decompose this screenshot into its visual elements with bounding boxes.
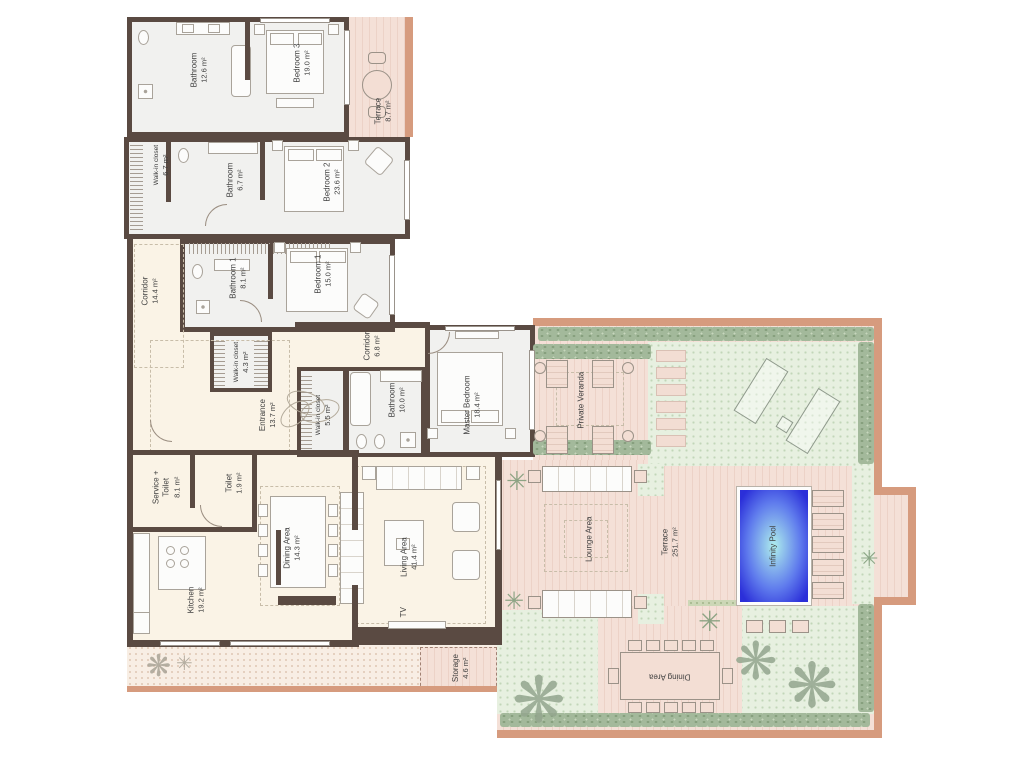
garden-right-strip <box>852 466 874 604</box>
wardrobe <box>254 338 268 388</box>
dining-chair <box>700 640 714 651</box>
stepping-stone <box>656 384 686 396</box>
sink <box>182 24 194 33</box>
dining-chair <box>628 640 642 651</box>
dining-chair <box>258 504 268 517</box>
dining-chair <box>258 564 268 577</box>
pool-lounger <box>812 582 844 599</box>
room-label-wic-master: Walk-in closet5.5 m² <box>312 385 336 445</box>
wall <box>260 142 265 200</box>
stepping-stone <box>656 418 686 430</box>
balcony-edge <box>127 686 497 692</box>
dining-chair <box>700 702 714 713</box>
floor-plan: ❋ ✳ <box>0 0 1024 768</box>
wall <box>190 450 195 508</box>
bidet <box>374 434 385 449</box>
bathtub <box>350 372 371 426</box>
tree-icon: ❋ <box>512 668 566 732</box>
nightstand <box>350 242 361 253</box>
wall-tv <box>352 627 502 645</box>
plant-icon: ✳ <box>176 654 193 674</box>
wall <box>127 234 133 646</box>
wall <box>245 22 250 80</box>
dining-chair <box>722 668 733 684</box>
nightstand <box>348 140 359 151</box>
pool-chair <box>792 620 809 633</box>
dining-chair <box>682 702 696 713</box>
wall <box>252 450 257 530</box>
hedge <box>533 344 651 359</box>
wardrobe <box>130 142 143 230</box>
room-label-corridor-master: Corridor6.8 m² <box>358 328 386 364</box>
outdoor-sofa <box>542 466 632 492</box>
fridge <box>133 612 150 634</box>
nightstand <box>274 242 285 253</box>
nightstand <box>328 24 339 35</box>
window <box>529 350 535 430</box>
wall <box>127 450 359 455</box>
side-table <box>622 362 634 374</box>
dining-chair <box>328 564 338 577</box>
outdoor-bump <box>874 487 916 605</box>
veranda-lounger <box>546 426 568 454</box>
nightstand <box>254 24 265 35</box>
bench <box>276 98 314 108</box>
terrace-top-edge <box>405 17 413 137</box>
room-label-kitchen: Kitchen19.2 m² <box>182 570 210 630</box>
dining-chair <box>258 544 268 557</box>
nightstand <box>505 428 516 439</box>
veranda-lounger <box>592 426 614 454</box>
wall <box>352 585 358 630</box>
side-table <box>528 470 541 483</box>
room-label-pool: Infinity Pool <box>760 514 788 578</box>
stepping-stone <box>656 435 686 447</box>
sink <box>208 24 220 33</box>
terrace-chair <box>368 52 386 64</box>
dining-chair <box>328 544 338 557</box>
armchair <box>452 502 480 532</box>
stepping-stone <box>656 401 686 413</box>
dining-chair <box>628 702 642 713</box>
wall <box>127 527 257 532</box>
tree-icon: ❋ <box>734 636 778 688</box>
room-label-tv: TV <box>395 600 413 624</box>
hedge <box>538 327 874 341</box>
dining-chair <box>664 640 678 651</box>
nightstand <box>427 428 438 439</box>
hedge <box>858 342 874 464</box>
room-label-wic-mid: Walk-in closet4.3 m² <box>230 334 254 390</box>
room-label-bedroom3: Bedroom 319.0 m² <box>290 35 316 91</box>
shower <box>196 300 210 314</box>
pool-lounger <box>812 513 844 530</box>
side-table <box>622 430 634 442</box>
shower <box>138 84 153 99</box>
room-label-dining: Dining Area14.3 m² <box>280 518 306 578</box>
outdoor-sofa <box>542 590 632 618</box>
dining-chair <box>646 702 660 713</box>
window <box>344 30 350 105</box>
nightstand <box>272 140 283 151</box>
palm-icon: ✳ <box>698 608 721 636</box>
side-table <box>634 470 647 483</box>
room-label-lounge: Lounge Area <box>576 508 604 570</box>
room-label-corridor-main: Corridor14.4 m² <box>136 262 164 320</box>
plant-icon: ❋ <box>146 652 171 682</box>
pool-chair <box>746 620 763 633</box>
dining-chair <box>258 524 268 537</box>
dining-chair <box>682 640 696 651</box>
window <box>445 326 515 331</box>
room-label-storage: Storage4.6 m² <box>448 646 474 690</box>
toilet <box>138 30 149 45</box>
side-table <box>534 430 546 442</box>
room-label-outdoor-dining: Dining Area <box>630 666 710 686</box>
side-table <box>362 466 376 480</box>
room-label-bedroom1: Bedroom 115.0 m² <box>310 243 338 305</box>
pool-chair <box>769 620 786 633</box>
room-label-bathroom3: Bathroom12.6 m² <box>186 40 212 100</box>
hob-burner <box>180 559 189 568</box>
room-label-service-toilet: Service + Toilet8.1 m² <box>150 458 184 516</box>
room-label-toilet: Toilet1.9 m² <box>222 458 248 508</box>
side-table <box>534 362 546 374</box>
room-label-private-veranda: Private Veranda <box>568 368 594 432</box>
pool-lounger <box>812 559 844 576</box>
dining-chair <box>664 702 678 713</box>
room-label-terrace-top: Terrace8.7 m² <box>370 82 396 140</box>
veranda-lounger <box>592 360 614 388</box>
tv-console <box>455 331 499 339</box>
dining-chair <box>646 640 660 651</box>
hob-burner <box>180 546 189 555</box>
room-label-wic-top: Walk-in closet6.7 m² <box>150 135 174 195</box>
pool-lounger <box>812 490 844 507</box>
room-label-bathroom1: Bathroom 18.1 m² <box>226 248 252 308</box>
stepping-stone <box>656 350 686 362</box>
toilet <box>356 434 367 449</box>
sideboard <box>278 596 336 605</box>
pool-lounger <box>812 536 844 553</box>
room-label-terrace-main: Terrace251.7 m² <box>657 510 685 574</box>
side-table <box>634 596 647 609</box>
dining-chair <box>328 504 338 517</box>
palm-icon: ✳ <box>860 548 878 570</box>
wardrobe <box>214 338 225 388</box>
wardrobe <box>301 373 312 451</box>
window <box>260 18 330 23</box>
window-sliding <box>496 480 501 550</box>
hob-burner <box>166 559 175 568</box>
toilet <box>178 148 189 163</box>
sofa <box>376 466 462 490</box>
room-label-bathroom-master: Bathroom10.0 m² <box>383 372 411 428</box>
window-sliding <box>230 641 330 646</box>
dining-chair <box>328 524 338 537</box>
dining-chair <box>608 668 619 684</box>
palm-icon: ✳ <box>506 468 528 494</box>
room-label-living: Living Area41.4 m² <box>396 527 424 587</box>
room-label-master-bedroom: Master Bedroom18.4 m² <box>458 370 488 440</box>
wall <box>268 244 273 299</box>
pillow <box>288 149 314 161</box>
room-label-bathroom2: Bathroom6.7 m² <box>222 150 248 210</box>
veranda-lounger <box>546 360 568 388</box>
palm-icon: ✳ <box>504 590 524 614</box>
tree-icon: ❋ <box>786 656 838 718</box>
window <box>389 255 395 315</box>
side-table <box>528 596 541 609</box>
stepping-stone <box>656 367 686 379</box>
room-label-bedroom2: Bedroom 223.6 m² <box>318 150 348 215</box>
window <box>404 160 410 220</box>
side-table <box>466 466 480 480</box>
window-sliding <box>160 641 220 646</box>
wall <box>352 452 358 530</box>
shower <box>400 432 416 448</box>
toilet <box>192 264 203 279</box>
room-label-entrance: Entrance13.7 m² <box>254 385 282 445</box>
armchair <box>452 550 480 580</box>
hob-burner <box>166 546 175 555</box>
hedge <box>858 604 874 712</box>
